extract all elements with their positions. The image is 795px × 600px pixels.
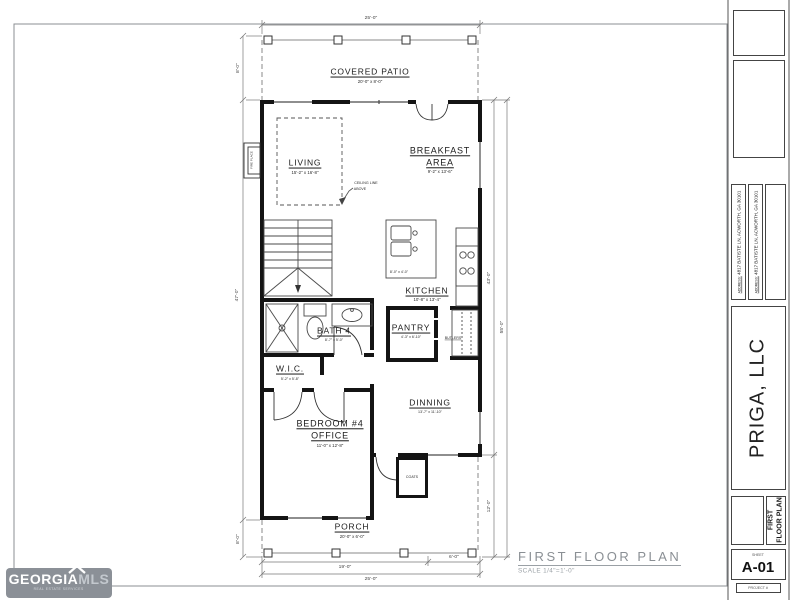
pantry-door <box>434 320 438 338</box>
label-coats: COATS <box>406 475 418 479</box>
room-bedroom4-1: BEDROOM #4 <box>296 419 363 428</box>
floor-plan-drawing <box>0 0 795 600</box>
titleblock-sheetname: FIRST FLOOR PLAN <box>767 497 785 543</box>
plan-title: FIRST FLOOR PLAN <box>518 549 681 566</box>
titleblock-company: PRIGA, LLC <box>747 338 770 458</box>
room-dining-dims: 13'-7" x 11'-10" <box>418 410 442 414</box>
georgia-mls-logo: GEORGIAMLS REAL ESTATE SERVICES <box>6 568 112 598</box>
room-kitchen: KITCHEN <box>406 287 449 296</box>
logo-row: GEORGIAMLS <box>9 571 110 587</box>
room-bedroom4-dims: 11'-0" x 12'-8" <box>317 444 344 449</box>
dim-bottom-total: 25'-0" <box>365 576 378 581</box>
room-living: LIVING <box>289 159 322 168</box>
titleblock-box-4 <box>731 496 764 545</box>
room-wic-dims: 5'-2" x 5'-8" <box>281 377 299 381</box>
room-kitchen-dims: 10'-8" x 13'-4" <box>413 298 440 303</box>
room-dining: DINNING <box>409 399 451 408</box>
dim-left-patio: 8'-0" <box>235 63 240 73</box>
room-breakfast-2: AREA <box>426 158 454 167</box>
roof-icon <box>67 565 87 574</box>
dim-left-porch: 8'-0" <box>235 534 240 544</box>
room-covered-patio: COVERED PATIO <box>330 68 409 77</box>
label-butlers: BUTLERS <box>445 336 462 340</box>
butler-counter <box>452 310 478 356</box>
titleblock-box-1 <box>733 10 785 56</box>
entry-door <box>376 457 398 480</box>
sheetname-line-2: FLOOR PLAN <box>776 497 785 543</box>
room-bedroom4-2: OFFICE <box>311 431 349 440</box>
room-porch: PORCH <box>335 523 370 532</box>
room-breakfast-1: BREAKFAST <box>410 146 470 155</box>
titleblock-box-3 <box>765 184 786 300</box>
dim-right-total: 55'-0" <box>499 321 504 334</box>
room-pantry: PANTRY <box>392 324 431 333</box>
dim-right-porch: 12'-0" <box>486 500 491 513</box>
plan-sheet: 25'-0" COVERED PATIO 20'-0" x 8'-0" 8'-0… <box>0 0 795 600</box>
sheet-label: SHEET <box>752 553 764 557</box>
address-text-2: 4817 BATISTE LN, ACWORTH, GA 30101 <box>753 191 758 275</box>
address-text-1: 4817 BATISTE LN, ACWORTH, GA 30101 <box>736 191 741 275</box>
project-label: PROJECT # <box>748 586 768 590</box>
dim-right-house: 43'-0" <box>486 272 491 285</box>
logo-tagline: REAL ESTATE SERVICES <box>34 587 84 591</box>
titleblock-address-2: ADDRESS: 4817 BATISTE LN, ACWORTH, GA 30… <box>753 191 758 294</box>
titleblock-address-1: ADDRESS: 4817 BATISTE LN, ACWORTH, GA 30… <box>736 191 741 294</box>
island-dims: 8'-0" x 4'-0" <box>390 270 408 274</box>
label-fireplace: FIRE PLACE <box>250 151 253 169</box>
stairs <box>264 220 332 296</box>
room-pantry-dims: 4'-3" x 6'-10" <box>401 335 421 339</box>
sheetname-line-1: FIRST <box>767 497 776 543</box>
note-ceiling-line-2: ABOVE <box>354 187 366 191</box>
room-bath4: BATH 4 <box>317 327 351 336</box>
kitchen-counter <box>456 228 478 306</box>
room-living-dims: 15'-2" x 16'-8" <box>291 171 318 176</box>
dim-bottom-right: 6'-0" <box>449 554 459 559</box>
address-label-2: ADDRESS: <box>755 276 758 293</box>
dim-top-width: 25'-0" <box>365 15 378 20</box>
note-ceiling-line-1: CEILING LINE <box>354 181 377 185</box>
plan-scale: SCALE 1/4"=1'-0" <box>518 567 575 574</box>
room-bath4-dims: 8'-7" x 5'-0" <box>325 338 343 342</box>
room-covered-patio-dims: 20'-0" x 8'-0" <box>358 80 383 85</box>
room-porch-dims: 20'-0" x 6'-0" <box>340 535 365 540</box>
room-breakfast-dims: 9'-2" x 13'-6" <box>428 170 453 175</box>
address-label-1: ADDRESS: <box>738 276 741 293</box>
interior-doors <box>274 327 362 422</box>
dim-left-house: 47'-0" <box>234 289 239 302</box>
french-door <box>416 104 448 120</box>
sheet-number: A-01 <box>742 560 775 576</box>
dim-bottom-left: 19'-0" <box>339 564 352 569</box>
titleblock-box-2 <box>733 60 785 158</box>
room-wic: W.I.C. <box>276 365 304 374</box>
